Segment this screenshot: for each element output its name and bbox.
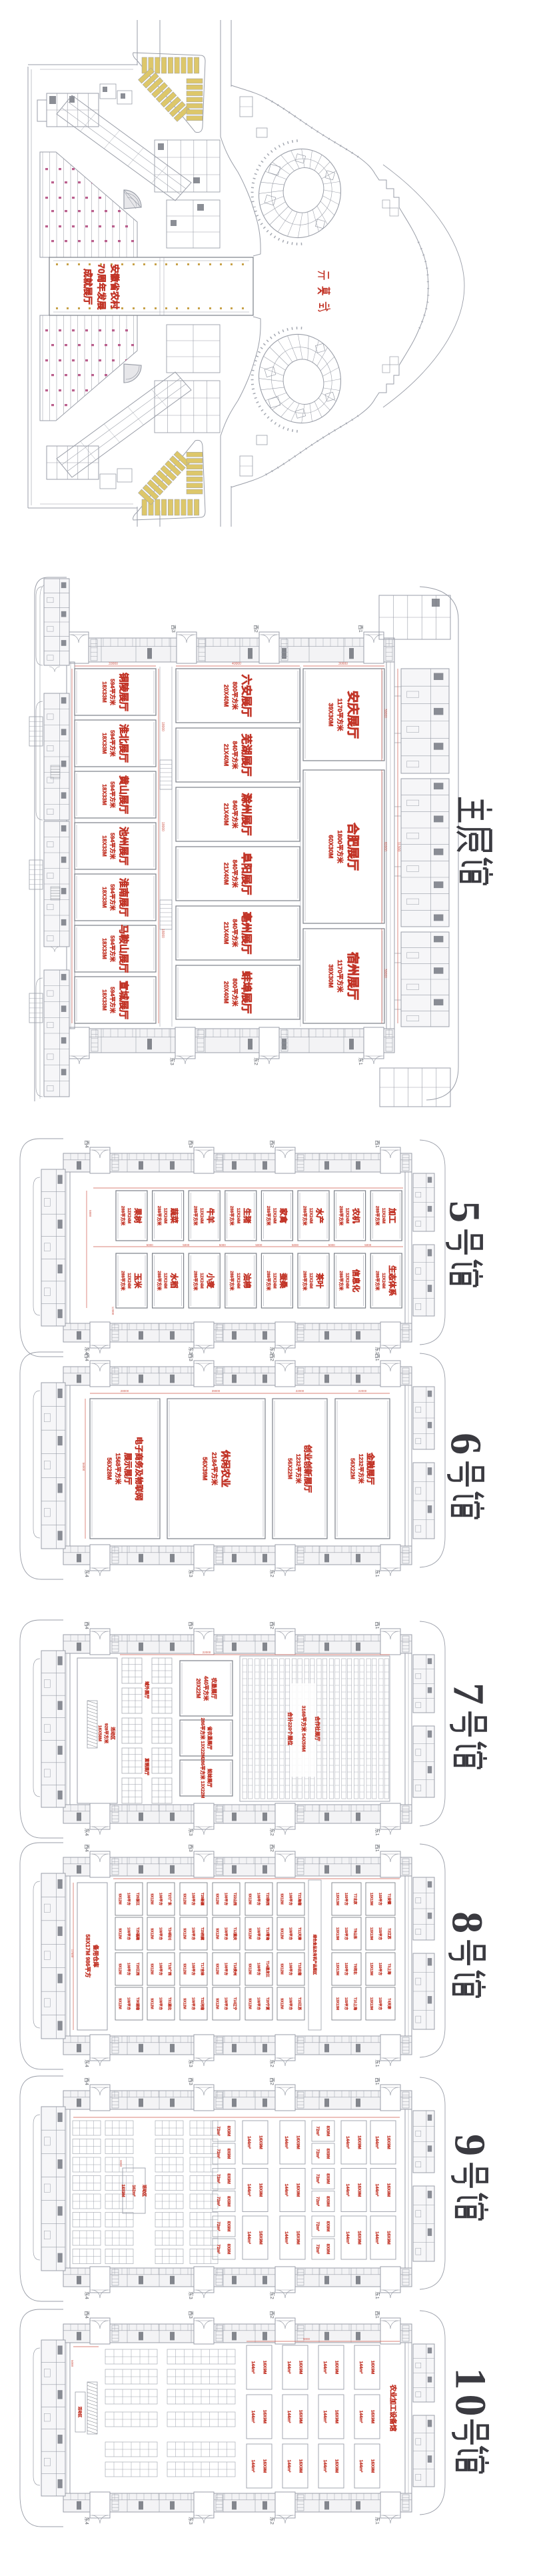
svg-text:5000: 5000 (255, 1243, 263, 1247)
svg-text:9X12M: 9X12M (280, 1893, 284, 1904)
svg-text:T8山东: T8山东 (352, 1928, 358, 1939)
svg-text:16X9M: 16X9M (295, 2231, 300, 2245)
svg-text:40000: 40000 (232, 662, 241, 666)
svg-text:11300: 11300 (396, 842, 400, 852)
svg-text:蚌埠展厅: 蚌埠展厅 (240, 971, 253, 1013)
svg-text:60000: 60000 (383, 842, 387, 851)
svg-text:7: 7 (444, 1683, 493, 1705)
svg-text:58X17M 986平方: 58X17M 986平方 (85, 1934, 91, 1978)
svg-text:72m²: 72m² (315, 2149, 320, 2158)
svg-text:144m²: 144m² (358, 2460, 363, 2473)
svg-text:西2: 西2 (269, 1353, 275, 1361)
svg-text:20X40M: 20X40M (223, 981, 229, 1004)
svg-text:108平方: 108平方 (127, 1927, 132, 1940)
svg-text:56000: 56000 (82, 1463, 85, 1471)
svg-text:西3: 西3 (188, 2077, 194, 2085)
svg-text:108平方: 108平方 (257, 1893, 262, 1905)
svg-text:9X12M: 9X12M (150, 1963, 154, 1974)
svg-text:西1: 西1 (374, 1844, 380, 1852)
svg-text:蔬菜: 蔬菜 (170, 1208, 179, 1223)
svg-text:594平方米: 594平方米 (109, 987, 116, 1013)
svg-text:162m²: 162m² (131, 2185, 136, 2196)
svg-text:西3: 西3 (171, 625, 177, 633)
svg-text:20X22M: 20X22M (195, 1679, 201, 1699)
svg-text:T16辽宁: T16辽宁 (233, 1997, 238, 2010)
svg-text:T23陕西: T23陕西 (265, 1893, 270, 1905)
svg-text:13X13M: 13X13M (369, 1927, 373, 1940)
svg-text:绿色食品及有机产品展区: 绿色食品及有机产品展区 (312, 1935, 318, 1975)
svg-text:108平方: 108平方 (224, 1963, 229, 1975)
svg-text:东4: 东4 (84, 2291, 91, 2299)
svg-text:288平方米: 288平方米 (193, 1271, 199, 1291)
svg-text:17500: 17500 (71, 1949, 74, 1958)
svg-text:合肥展厅: 合肥展厅 (346, 823, 360, 871)
svg-text:144m²: 144m² (322, 2361, 327, 2375)
svg-text:淮南展厅: 淮南展厅 (117, 878, 129, 917)
svg-text:594平方米: 594平方米 (109, 884, 116, 911)
svg-text:安徽省农村: 安徽省农村 (110, 264, 121, 309)
svg-text:16X9M: 16X9M (258, 2135, 263, 2149)
svg-text:T26浙江: T26浙江 (135, 1893, 141, 1906)
svg-text:西4: 西4 (84, 1621, 90, 1629)
svg-text:18X33M: 18X33M (101, 989, 108, 1011)
svg-text:西4: 西4 (84, 2311, 90, 2319)
svg-text:13X13M: 13X13M (369, 1893, 373, 1905)
svg-text:创业创新展厅: 创业创新展厅 (303, 1444, 313, 1493)
svg-text:22000: 22000 (358, 1389, 367, 1393)
svg-text:144m²: 144m² (251, 2361, 255, 2375)
svg-text:16X9M: 16X9M (262, 2361, 266, 2375)
svg-text:西4: 西4 (84, 1140, 90, 1148)
svg-text:宿州展厅: 宿州展厅 (346, 952, 360, 1000)
svg-text:288平方米: 288平方米 (338, 1206, 344, 1226)
svg-text:小麦: 小麦 (206, 1273, 215, 1289)
svg-text:茶叶: 茶叶 (315, 1273, 324, 1289)
svg-text:亳州展厅: 亳州展厅 (240, 911, 253, 954)
svg-text:16X9M: 16X9M (386, 2135, 390, 2149)
svg-text:169平方: 169平方 (344, 1963, 349, 1975)
svg-text:9X12M: 9X12M (215, 1998, 219, 2009)
svg-text:T31湖北: T31湖北 (167, 1997, 173, 2011)
svg-text:西4: 西4 (84, 2077, 90, 2085)
svg-text:东2: 东2 (253, 1057, 260, 1065)
svg-text:108平方: 108平方 (191, 1963, 197, 1975)
svg-text:家禽: 家禽 (278, 1208, 288, 1223)
svg-text:144m²: 144m² (247, 2231, 251, 2245)
svg-text:T3上海: T3上海 (386, 1963, 392, 1975)
svg-text:288平方米: 288平方米 (193, 1206, 199, 1226)
svg-text:288平方米: 288平方米 (375, 1206, 381, 1226)
svg-text:T14黑龙江: T14黑龙江 (265, 1961, 270, 1977)
svg-text:108平方: 108平方 (127, 1963, 132, 1975)
svg-text:288平方米: 288平方米 (375, 1271, 381, 1291)
svg-text:东2: 东2 (269, 2517, 276, 2525)
svg-text:东1: 东1 (374, 1569, 381, 1577)
svg-text:马鞍山展厅: 马鞍山展厅 (117, 925, 129, 973)
svg-text:展示展厅: 展示展厅 (123, 1453, 133, 1485)
svg-text:东2: 东2 (269, 2291, 276, 2299)
svg-text:108平方: 108平方 (257, 1963, 262, 1975)
svg-text:12X24M: 12X24M (163, 1208, 168, 1223)
svg-text:594平方米: 594平方米 (109, 833, 116, 859)
svg-text:6: 6 (442, 1433, 490, 1455)
svg-text:16X9M: 16X9M (386, 2231, 390, 2245)
svg-text:5000: 5000 (292, 1243, 299, 1247)
svg-text:成就展厅: 成就展厅 (83, 269, 93, 305)
svg-text:域外展厅: 域外展厅 (145, 1681, 151, 1699)
svg-text:T15江苏: T15江苏 (297, 1997, 302, 2011)
svg-text:286平方米 13X22M: 286平方米 13X22M (200, 1718, 206, 1759)
svg-text:144m²: 144m² (345, 2184, 350, 2197)
svg-text:T25福建: T25福建 (135, 1927, 141, 1941)
svg-text:9X12M: 9X12M (150, 1928, 154, 1939)
svg-text:8X9M: 8X9M (326, 2221, 330, 2232)
svg-text:5800: 5800 (89, 1210, 92, 1217)
svg-text:144m²: 144m² (286, 2460, 291, 2473)
svg-text:9X12M: 9X12M (215, 1928, 219, 1939)
svg-text:T21海南: T21海南 (297, 1893, 302, 1905)
svg-text:5000: 5000 (71, 2360, 74, 2367)
svg-text:108平方: 108平方 (288, 1927, 294, 1940)
svg-text:70周年发展: 70周年发展 (96, 263, 107, 310)
svg-text:T2江苏: T2江苏 (386, 1928, 392, 1939)
svg-text:13X13M: 13X13M (369, 1963, 373, 1975)
svg-text:16X9M: 16X9M (298, 2361, 302, 2375)
svg-text:144m²: 144m² (284, 2231, 288, 2245)
svg-text:T20宁夏: T20宁夏 (265, 1997, 270, 2011)
svg-text:108平方: 108平方 (191, 1893, 197, 1905)
svg-text:16X9M: 16X9M (334, 2410, 338, 2424)
svg-text:T17吉林: T17吉林 (200, 1963, 205, 1976)
svg-text:12X24M: 12X24M (381, 1208, 386, 1223)
svg-text:农垦展厅: 农垦展厅 (211, 1677, 217, 1699)
svg-text:169平方: 169平方 (344, 1893, 349, 1905)
svg-text:阜阳展厅: 阜阳展厅 (240, 852, 253, 895)
svg-text:T30湖南: T30湖南 (135, 1997, 141, 2010)
svg-text:8X9M: 8X9M (227, 2173, 231, 2184)
svg-text:T19广西: T19广西 (167, 1963, 173, 1975)
svg-text:28000: 28000 (121, 1389, 129, 1393)
svg-text:西1: 西1 (374, 2311, 380, 2319)
svg-text:0: 0 (446, 2395, 495, 2417)
svg-text:72m²: 72m² (315, 2174, 320, 2183)
svg-text:T27广东: T27广东 (167, 1893, 173, 1906)
svg-text:1232平方米: 1232平方米 (358, 1454, 364, 1484)
svg-text:淮北展厅: 淮北展厅 (117, 724, 129, 763)
svg-text:12X24M: 12X24M (236, 1208, 241, 1223)
svg-text:108平方: 108平方 (159, 1963, 164, 1975)
svg-text:16X9M: 16X9M (356, 2231, 361, 2245)
svg-text:16X9M: 16X9M (334, 2361, 338, 2375)
svg-text:西1: 西1 (358, 625, 364, 633)
svg-text:8X9M: 8X9M (227, 2196, 231, 2207)
svg-text:T7北京: T7北京 (352, 1893, 358, 1904)
svg-text:1568平方米: 1568平方米 (115, 1453, 122, 1485)
svg-text:西2: 西2 (253, 625, 259, 633)
svg-text:8X9M: 8X9M (227, 2244, 231, 2255)
svg-text:286平方米 13X22M: 286平方米 13X22M (200, 1758, 206, 1799)
svg-text:16X9M: 16X9M (258, 2183, 263, 2197)
svg-text:西3: 西3 (188, 1621, 194, 1629)
svg-text:9X12M: 9X12M (150, 1998, 154, 2009)
svg-text:9X12M: 9X12M (280, 1928, 284, 1939)
svg-text:东1: 东1 (374, 1828, 381, 1836)
svg-text:电子商务及物联网: 电子商务及物联网 (135, 1437, 145, 1501)
svg-text:东1: 东1 (374, 2517, 381, 2525)
svg-text:蚕桑: 蚕桑 (278, 1273, 287, 1289)
svg-text:840平方米: 840平方米 (231, 859, 239, 888)
svg-text:省农垦展厅: 省农垦展厅 (207, 1726, 213, 1750)
svg-text:18000: 18000 (161, 929, 165, 938)
svg-text:144m²: 144m² (286, 2411, 291, 2424)
svg-text:108平方: 108平方 (191, 1997, 197, 2010)
svg-text:108平方: 108平方 (159, 1893, 164, 1905)
svg-text:生猪: 生猪 (243, 1208, 252, 1223)
svg-text:288平方米: 288平方米 (266, 1206, 272, 1226)
svg-text:39X30M: 39X30M (327, 964, 334, 987)
svg-text:288平方米: 288平方米 (302, 1271, 308, 1291)
svg-text:东2: 东2 (269, 2059, 276, 2067)
svg-text:东2: 东2 (269, 1569, 276, 1577)
svg-text:16X9M: 16X9M (370, 2459, 374, 2473)
svg-text:信息化: 信息化 (352, 1269, 361, 1293)
svg-text:西1: 西1 (374, 1621, 380, 1629)
svg-text:8X9M: 8X9M (326, 2126, 330, 2137)
svg-text:8X9M: 8X9M (227, 2221, 231, 2232)
svg-text:西1: 西1 (374, 1140, 380, 1148)
svg-text:169平方: 169平方 (378, 1927, 383, 1940)
svg-text:9X12M: 9X12M (183, 1928, 187, 1939)
svg-text:108平方: 108平方 (224, 1997, 229, 2010)
svg-text:东3: 东3 (188, 1828, 195, 1836)
svg-text:39X30M: 39X30M (327, 703, 334, 726)
svg-text:144m²: 144m² (284, 2184, 288, 2197)
svg-text:144m²: 144m² (345, 2136, 350, 2149)
svg-text:西4: 西4 (84, 1844, 90, 1852)
svg-text:18X33M: 18X33M (101, 733, 108, 754)
svg-text:T29西藏: T29西藏 (200, 1927, 205, 1941)
svg-text:东3: 东3 (188, 2517, 195, 2525)
svg-text:16X9M: 16X9M (262, 2459, 266, 2473)
svg-text:72m²: 72m² (315, 2197, 320, 2206)
svg-text:滁州展厅: 滁州展厅 (240, 793, 253, 835)
svg-text:西2: 西2 (269, 1621, 275, 1629)
svg-text:5000: 5000 (183, 1243, 190, 1247)
svg-text:12X24M: 12X24M (199, 1208, 204, 1223)
svg-text:108平方: 108平方 (224, 1927, 229, 1940)
svg-text:12000: 12000 (111, 1307, 115, 1315)
svg-text:西3: 西3 (188, 2311, 194, 2319)
svg-text:928平方米: 928平方米 (104, 1723, 110, 1744)
svg-text:72m²: 72m² (315, 2244, 320, 2253)
svg-text:宣城展厅: 宣城展厅 (117, 981, 129, 1019)
svg-text:黄山展厅: 黄山展厅 (117, 775, 129, 814)
svg-text:108平方: 108平方 (257, 1997, 262, 2010)
svg-text:8X9M: 8X9M (326, 2244, 330, 2255)
svg-text:108平方: 108平方 (191, 1927, 197, 1940)
svg-text:56X22M: 56X22M (349, 1458, 356, 1479)
svg-text:39000: 39000 (383, 709, 387, 718)
svg-text:8X9M: 8X9M (326, 2196, 330, 2207)
svg-text:西3: 西3 (188, 1844, 194, 1852)
svg-text:3168平方米 54X59M: 3168平方米 54X59M (300, 1705, 307, 1751)
svg-text:T4天津: T4天津 (386, 1998, 392, 2009)
svg-text:39000: 39000 (383, 969, 387, 978)
svg-text:21X40M: 21X40M (223, 922, 229, 945)
svg-text:144m²: 144m² (374, 2136, 379, 2149)
svg-text:144m²: 144m² (284, 2136, 288, 2149)
svg-text:东4: 东4 (84, 1569, 91, 1577)
svg-text:13X13M: 13X13M (335, 1893, 339, 1905)
svg-text:16X9M: 16X9M (386, 2183, 390, 2197)
svg-text:东1: 东1 (374, 2291, 381, 2299)
svg-text:16X9M: 16X9M (298, 2410, 302, 2424)
svg-text:8X9M: 8X9M (326, 2149, 330, 2159)
svg-text:玉米: 玉米 (133, 1273, 143, 1289)
svg-text:T18贵州: T18贵州 (233, 1963, 238, 1975)
svg-text:144m²: 144m² (374, 2184, 379, 2197)
svg-text:13X13M: 13X13M (335, 1927, 339, 1940)
svg-text:108平方: 108平方 (257, 1927, 262, 1940)
svg-text:288平方米: 288平方米 (157, 1271, 163, 1291)
svg-text:东3: 东3 (188, 1569, 195, 1577)
svg-text:5: 5 (440, 1201, 489, 1223)
svg-text:16X9M: 16X9M (258, 2231, 263, 2245)
svg-text:六安展厅: 六安展厅 (240, 674, 253, 717)
svg-text:芜湖展厅: 芜湖展厅 (240, 733, 253, 776)
svg-text:1170平方米: 1170平方米 (336, 698, 344, 731)
svg-text:18X33M: 18X33M (101, 887, 108, 908)
svg-text:21X40M: 21X40M (223, 863, 229, 885)
svg-text:东1: 东1 (374, 2059, 381, 2067)
svg-text:东3: 东3 (169, 1057, 176, 1065)
svg-text:活动区: 活动区 (142, 2185, 147, 2197)
svg-text:活动区: 活动区 (111, 1727, 117, 1740)
svg-text:108平方: 108平方 (288, 1893, 294, 1905)
svg-text:9X12M: 9X12M (248, 1928, 252, 1939)
svg-text:西3: 西3 (188, 1140, 194, 1148)
svg-text:T9河北: T9河北 (352, 1963, 358, 1975)
svg-text:288平方米: 288平方米 (266, 1271, 272, 1291)
svg-text:铜陵展厅: 铜陵展厅 (117, 673, 129, 711)
svg-text:800平方米: 800平方米 (231, 978, 239, 1007)
svg-text:18X33M: 18X33M (101, 784, 108, 805)
svg-text:9X12M: 9X12M (183, 1963, 187, 1974)
svg-text:T28新疆: T28新疆 (200, 1893, 205, 1906)
svg-text:T15云南: T15云南 (297, 1963, 302, 1975)
svg-text:合作社展厅: 合作社展厅 (314, 1716, 321, 1741)
svg-text:288平方米: 288平方米 (229, 1271, 235, 1291)
svg-text:72m²: 72m² (216, 2174, 221, 2183)
svg-text:18X33M: 18X33M (101, 835, 108, 857)
svg-text:东4: 东4 (84, 2517, 91, 2525)
svg-text:72m²: 72m² (315, 2221, 320, 2231)
svg-text:840平方米: 840平方米 (231, 800, 239, 829)
svg-text:169平方: 169平方 (344, 1927, 349, 1940)
svg-text:姐妹展厅: 姐妹展厅 (207, 1769, 213, 1787)
svg-text:9X12M: 9X12M (150, 1893, 154, 1904)
svg-text:56X39M: 56X39M (201, 1457, 209, 1480)
svg-text:西1: 西1 (374, 1353, 380, 1361)
svg-text:1: 1 (446, 2368, 495, 2390)
svg-text:牛羊: 牛羊 (206, 1208, 215, 1223)
svg-text:840平方米: 840平方米 (231, 741, 239, 769)
svg-text:72m²: 72m² (216, 2244, 221, 2253)
svg-text:9X12M: 9X12M (215, 1893, 219, 1904)
svg-text:合计220个展位: 合计220个展位 (287, 1712, 294, 1746)
svg-text:2184平方米: 2184平方米 (210, 1452, 218, 1485)
svg-text:金融展厅: 金融展厅 (366, 1452, 376, 1485)
svg-text:72m²: 72m² (216, 2221, 221, 2231)
svg-text:9X12M: 9X12M (248, 1998, 252, 2009)
svg-text:56X22M: 56X22M (286, 1458, 293, 1479)
svg-text:安庆展厅: 安庆展厅 (346, 691, 360, 739)
svg-text:东2: 东2 (269, 1828, 276, 1836)
svg-text:144m²: 144m² (286, 2361, 291, 2375)
svg-text:活动区: 活动区 (77, 2407, 83, 2418)
svg-text:144m²: 144m² (374, 2231, 379, 2245)
svg-text:5000: 5000 (219, 1243, 227, 1247)
svg-text:72m²: 72m² (216, 2149, 221, 2158)
svg-text:T13青海: T13青海 (265, 1927, 270, 1941)
svg-text:12X24M: 12X24M (272, 1273, 276, 1288)
svg-text:18X9M: 18X9M (121, 2184, 125, 2197)
svg-text:9X12M: 9X12M (183, 1998, 187, 2009)
svg-text:60X30M: 60X30M (327, 835, 334, 858)
svg-text:西2: 西2 (269, 2077, 275, 2085)
svg-text:800平方米: 800平方米 (231, 681, 239, 710)
svg-text:东3: 东3 (188, 2059, 195, 2067)
svg-text:840平方米: 840平方米 (231, 919, 239, 947)
svg-text:16X9M: 16X9M (370, 2410, 374, 2424)
svg-text:594平方米: 594平方米 (109, 781, 116, 808)
svg-text:16X9M: 16X9M (356, 2135, 361, 2149)
svg-text:16X9M: 16X9M (298, 2459, 302, 2473)
svg-text:21X40M: 21X40M (223, 744, 229, 767)
svg-text:生态体系: 生态体系 (388, 1265, 397, 1296)
svg-text:东4: 东4 (84, 1828, 91, 1836)
svg-text:16X9M: 16X9M (334, 2459, 338, 2473)
svg-text:水产: 水产 (315, 1208, 324, 1223)
svg-text:13X13M: 13X13M (335, 1997, 339, 2010)
svg-text:8X9M: 8X9M (227, 2126, 231, 2137)
svg-text:西2: 西2 (269, 1140, 275, 1148)
svg-text:18X33M: 18X33M (101, 938, 108, 959)
svg-text:池州展厅: 池州展厅 (117, 827, 129, 865)
svg-text:8X9M: 8X9M (326, 2173, 330, 2184)
svg-text:9000: 9000 (303, 2337, 310, 2341)
svg-text:13X13M: 13X13M (369, 1997, 373, 2010)
svg-text:144m²: 144m² (358, 2411, 363, 2424)
svg-text:33000: 33000 (109, 662, 118, 666)
svg-text:9X12M: 9X12M (118, 1998, 122, 2009)
svg-text:21X40M: 21X40M (223, 803, 229, 826)
svg-text:9X12M: 9X12M (118, 1928, 122, 1939)
svg-text:T12重庆: T12重庆 (233, 1927, 238, 1941)
svg-text:9X12M: 9X12M (215, 1963, 219, 1974)
svg-text:108平方: 108平方 (288, 1963, 294, 1975)
svg-text:1800平方米: 1800平方米 (336, 830, 344, 863)
svg-text:水稻: 水稻 (170, 1273, 179, 1289)
svg-text:12X24M: 12X24M (272, 1208, 276, 1223)
svg-text:22000: 22000 (203, 1651, 211, 1654)
svg-text:T10上海: T10上海 (352, 1997, 358, 2011)
svg-text:T20江西: T20江西 (135, 1963, 141, 1975)
svg-text:12X24M: 12X24M (345, 1273, 350, 1288)
svg-text:144m²: 144m² (247, 2136, 251, 2149)
svg-text:288平方米: 288平方米 (120, 1206, 126, 1226)
svg-text:16X58M: 16X58M (97, 1725, 102, 1741)
